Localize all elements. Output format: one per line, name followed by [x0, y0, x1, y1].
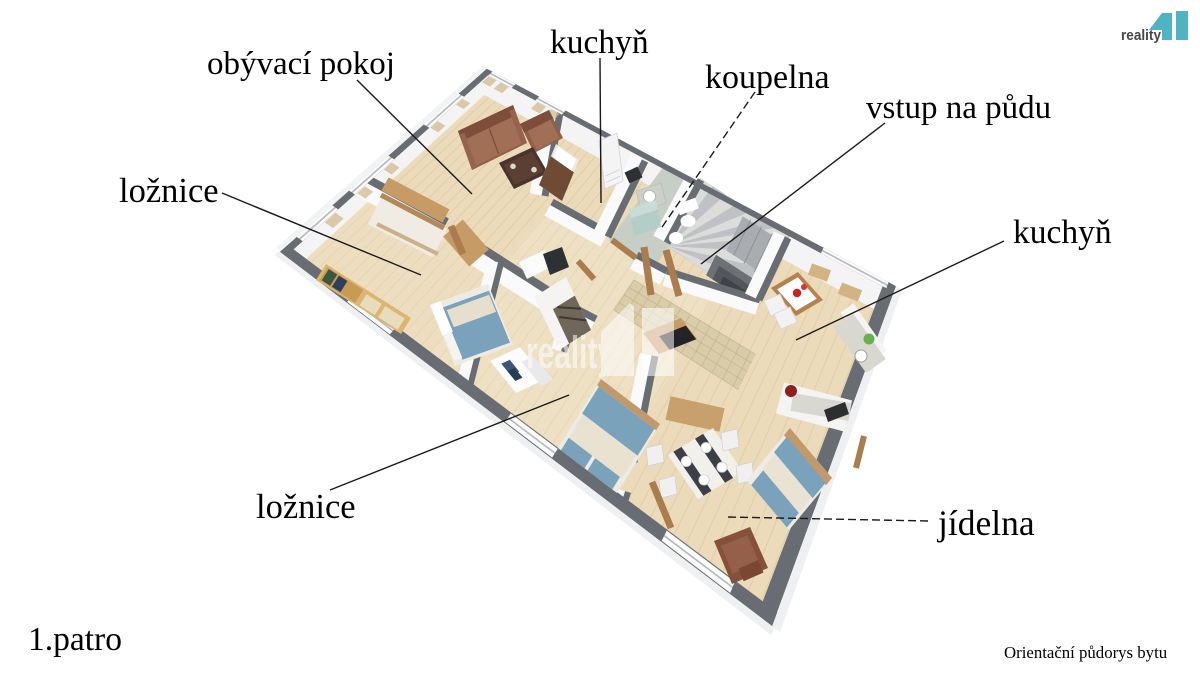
svg-text:reality: reality: [526, 327, 614, 378]
